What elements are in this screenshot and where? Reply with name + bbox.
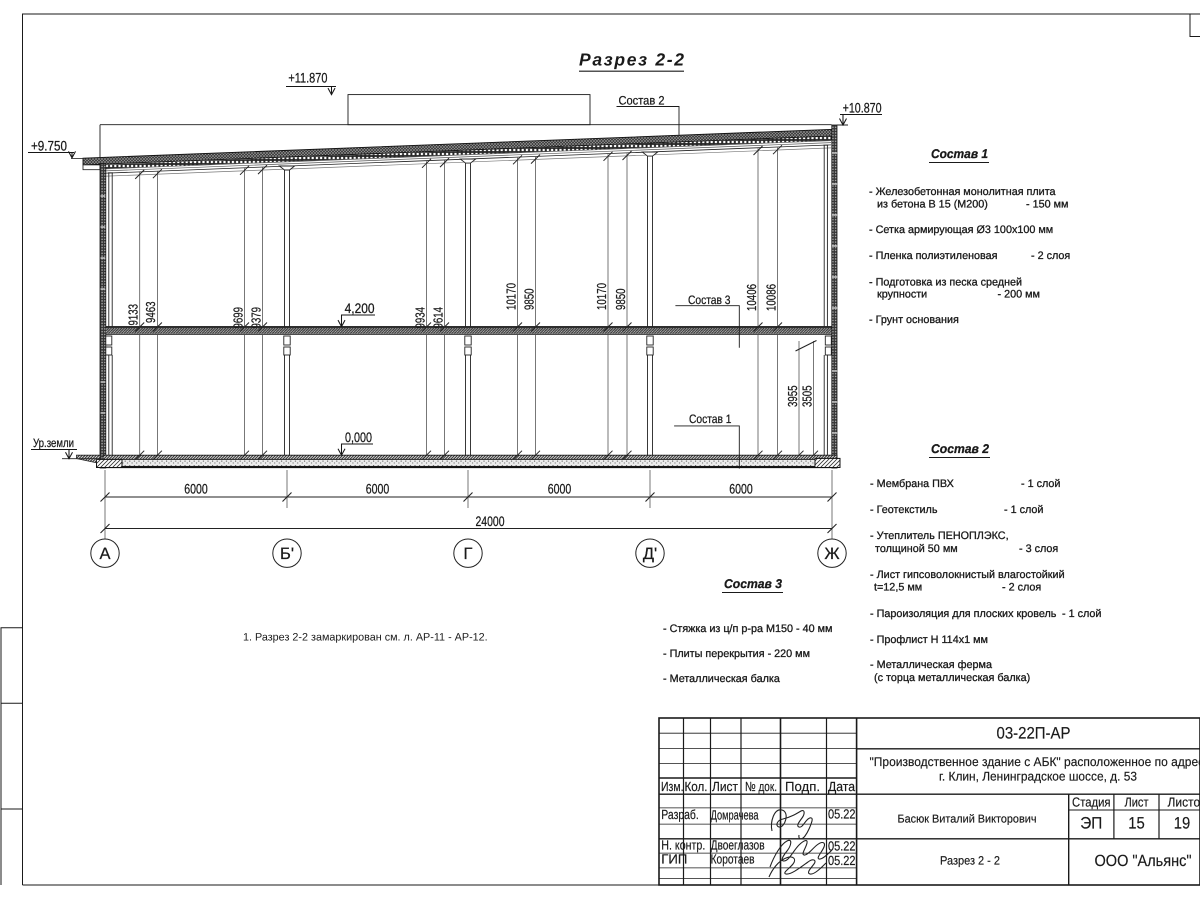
svg-text:крупности: крупности [877,289,927,301]
svg-text:9699: 9699 [231,307,246,329]
svg-text:3505: 3505 [800,386,815,408]
svg-text:10170: 10170 [594,283,609,310]
svg-text:(с торца металлическая балка): (с торца металлическая балка) [874,672,1030,684]
svg-text:Д': Д' [643,545,657,563]
svg-text:Басюк Виталий Викторович: Басюк Виталий Викторович [898,814,1037,826]
svg-text:Состав 1: Состав 1 [689,412,732,426]
svg-text:Стадия: Стадия [1072,795,1111,810]
svg-text:Дата: Дата [828,779,856,794]
svg-text:Подп.: Подп. [785,779,820,794]
svg-text:- Грунт основания: - Грунт основания [869,314,959,326]
svg-text:Изм.: Изм. [661,779,684,794]
svg-text:9614: 9614 [431,307,446,329]
svg-text:6000: 6000 [184,482,208,497]
svg-text:- Лист гипсоволокнистый влагос: - Лист гипсоволокнистый влагостойкий [870,569,1065,581]
svg-text:- Металлическая ферма: - Металлическая ферма [870,659,992,671]
svg-text:Разрез 2 - 2: Разрез 2 - 2 [940,854,1000,868]
svg-text:03-22П-АР: 03-22П-АР [997,725,1071,743]
svg-text:- Геотекстиль: - Геотекстиль [870,504,938,516]
svg-text:1. Разрез 2-2 замаркирован см.: 1. Разрез 2-2 замаркирован см. л. АР-11 … [243,632,488,644]
svg-text:Двоеглазов: Двоеглазов [711,838,765,853]
svg-text:- Утеплитель ПЕНОПЛЭКС,: - Утеплитель ПЕНОПЛЭКС, [870,530,1009,542]
svg-text:- Профлист Н 114х1 мм: - Профлист Н 114х1 мм [870,634,988,646]
svg-text:Г: Г [464,545,473,563]
svg-text:ЭП: ЭП [1080,815,1102,833]
svg-text:10170: 10170 [504,283,519,310]
svg-text:- Пленка полиэтиленовая: - Пленка полиэтиленовая [869,250,998,262]
svg-text:- 1 слой: - 1 слой [1004,504,1043,516]
svg-text:9850: 9850 [522,289,537,311]
svg-text:- Плиты перекрытия - 220 мм: - Плиты перекрытия - 220 мм [663,648,810,660]
svg-text:9379: 9379 [249,307,264,329]
svg-text:из бетона В 15 (М200): из бетона В 15 (М200) [877,199,988,211]
svg-text:Кол.: Кол. [685,779,708,794]
svg-text:15: 15 [1128,815,1145,833]
svg-text:- Стяжка из ц/п р-ра М150 - 40: - Стяжка из ц/п р-ра М150 - 40 мм [663,623,832,635]
svg-text:- 150 мм: - 150 мм [1026,199,1068,211]
svg-text:Разраб.: Разраб. [661,807,699,822]
svg-text:- 2 слоя: - 2 слоя [1002,582,1041,594]
svg-text:А: А [99,545,110,563]
svg-text:05.22: 05.22 [828,807,856,822]
svg-text:г. Клин, Ленинградское шоссе,: г. Клин, Ленинградское шоссе, д. 53 [939,770,1137,784]
svg-text:Состав 2: Состав 2 [931,442,989,456]
svg-text:Н. контр.: Н. контр. [661,838,705,853]
svg-text:Б': Б' [280,545,294,563]
svg-text:- 1 слой: - 1 слой [1062,608,1101,620]
svg-text:Ж: Ж [824,545,840,563]
svg-text:05.22: 05.22 [828,853,856,868]
svg-text:Состав 3: Состав 3 [724,577,782,591]
svg-text:t=12,5 мм: t=12,5 мм [874,582,922,594]
svg-text:толщиной 50 мм: толщиной 50 мм [875,543,958,555]
svg-text:- Железобетонная монолитная п: - Железобетонная монолитная плита [869,186,1056,198]
svg-text:Коротаев: Коротаев [711,851,755,866]
svg-text:- Подготовка из песка средней: - Подготовка из песка средней [869,276,1022,288]
svg-text:6000: 6000 [548,482,572,497]
svg-text:- 1 слой: - 1 слой [1021,478,1060,490]
svg-text:+11.870: +11.870 [288,71,327,86]
svg-text:9463: 9463 [143,302,158,324]
svg-text:05.22: 05.22 [828,839,856,854]
svg-text:- Сетка армирующая Ø3 100х100: - Сетка армирующая Ø3 100х100 мм [869,224,1053,236]
svg-text:- 2 слоя: - 2 слоя [1031,250,1070,262]
svg-text:9850: 9850 [613,289,628,311]
svg-text:6000: 6000 [366,482,390,497]
svg-text:Лист: Лист [1125,795,1149,810]
svg-text:- Металлическая балка: - Металлическая балка [663,673,780,685]
svg-text:Лист: Лист [712,779,738,794]
svg-text:№ док.: № док. [745,779,777,794]
svg-text:Листов: Листов [1168,795,1200,810]
svg-text:9934: 9934 [413,307,428,329]
svg-text:24000: 24000 [476,514,505,529]
svg-text:"Производственное здание с АБК: "Производственное здание с АБК" располож… [870,755,1200,769]
svg-text:4,200: 4,200 [345,301,375,316]
svg-text:+9.750: +9.750 [31,139,67,154]
svg-text:Состав 1: Состав 1 [931,147,988,161]
svg-text:ООО "Альянс": ООО "Альянс" [1095,852,1192,870]
svg-text:6000: 6000 [729,482,753,497]
svg-text:Ур.земли: Ур.земли [33,436,74,450]
svg-text:10086: 10086 [764,284,779,311]
svg-text:- 3 слоя: - 3 слоя [1019,543,1058,555]
svg-text:- Пароизоляция для плоских кро: - Пароизоляция для плоских кровель [870,608,1057,620]
svg-text:Состав 3: Состав 3 [688,293,731,307]
svg-text:9133: 9133 [126,304,141,326]
svg-text:3955: 3955 [785,386,800,408]
svg-text:10406: 10406 [744,284,759,311]
svg-text:Разрез 2-2: Разрез 2-2 [579,50,684,70]
svg-text:Домрачева: Домрачева [711,808,759,823]
svg-text:- Мембрана ПВХ: - Мембрана ПВХ [870,478,954,490]
svg-text:- 200 мм: - 200 мм [998,289,1040,301]
svg-text:Состав 2: Состав 2 [619,93,665,107]
svg-text:19: 19 [1174,815,1191,833]
svg-text:+10.870: +10.870 [843,101,882,116]
svg-text:ГИП: ГИП [661,851,687,866]
svg-text:0,000: 0,000 [345,430,372,445]
